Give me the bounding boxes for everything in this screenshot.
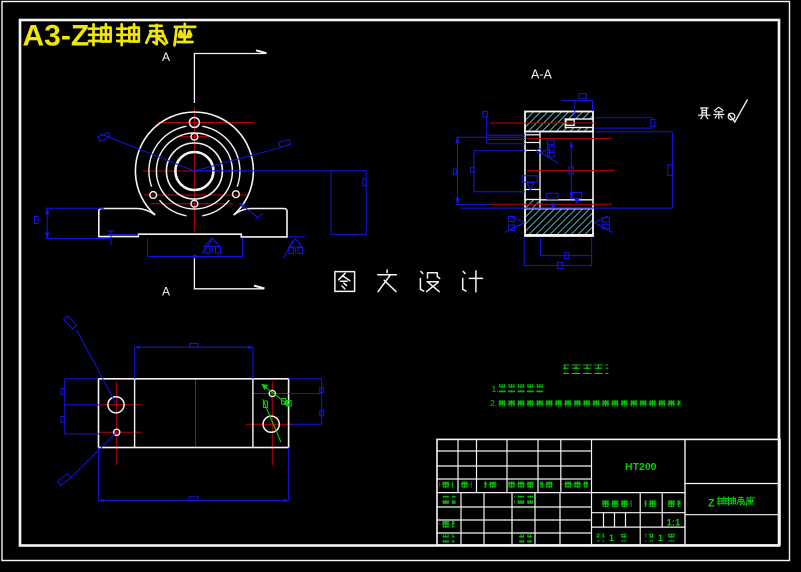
svg-text:1.: 1. <box>492 384 499 394</box>
svg-text:1: 1 <box>658 533 663 543</box>
svg-text:A-A: A-A <box>531 68 553 82</box>
svg-text:2.: 2. <box>490 398 497 408</box>
svg-text:1: 1 <box>609 533 614 543</box>
svg-text:A: A <box>162 50 170 64</box>
svg-text:Z: Z <box>708 498 715 510</box>
svg-text:HT200: HT200 <box>625 461 657 473</box>
svg-text:A: A <box>162 285 170 299</box>
svg-text:A3-Z: A3-Z <box>23 20 90 53</box>
svg-text:1:1: 1:1 <box>667 518 681 529</box>
